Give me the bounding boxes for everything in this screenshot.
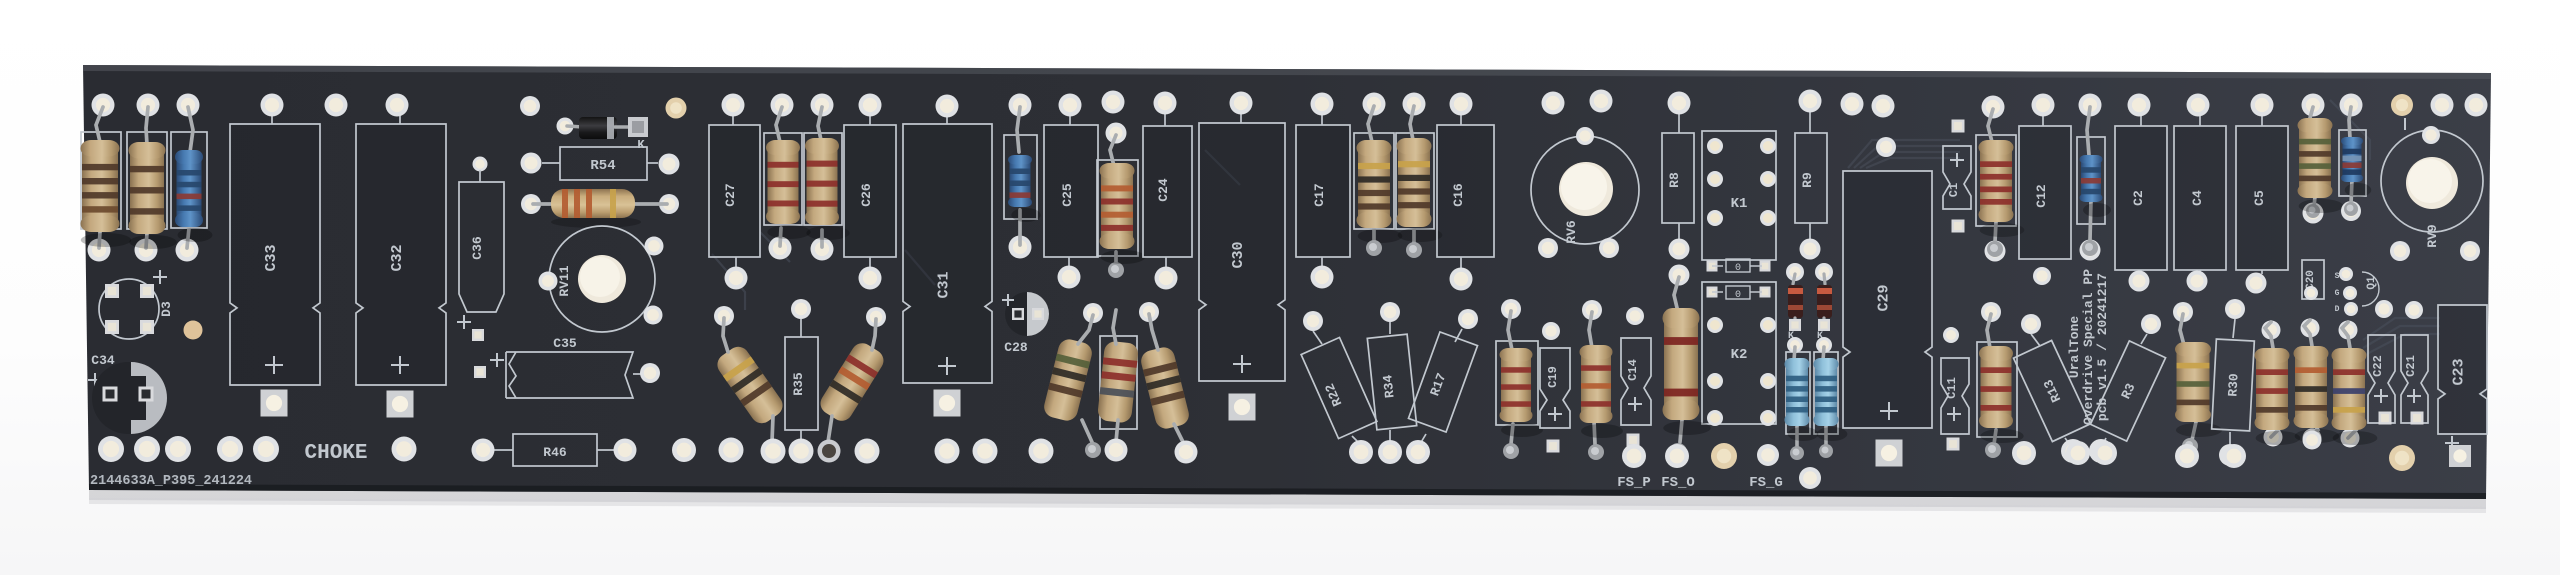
svg-text:C31: C31 bbox=[936, 271, 953, 298]
svg-text:CHOKE: CHOKE bbox=[304, 442, 367, 465]
svg-text:C29: C29 bbox=[1876, 284, 1893, 311]
svg-text:C5: C5 bbox=[2252, 190, 2267, 206]
svg-text:Q1: Q1 bbox=[2366, 276, 2378, 290]
svg-text:C11: C11 bbox=[1945, 377, 1959, 399]
svg-text:D3: D3 bbox=[159, 301, 174, 317]
svg-text:C4: C4 bbox=[2190, 190, 2205, 206]
svg-text:K: K bbox=[637, 138, 645, 152]
svg-text:C32: C32 bbox=[389, 244, 406, 271]
svg-text:S: S bbox=[2335, 272, 2340, 281]
svg-text:Overdrive Special PP: Overdrive Special PP bbox=[2081, 269, 2096, 425]
svg-text:K1: K1 bbox=[1731, 196, 1748, 212]
svg-text:K2: K2 bbox=[1731, 347, 1748, 363]
svg-text:C21: C21 bbox=[2404, 355, 2418, 377]
svg-text:R54: R54 bbox=[590, 158, 615, 174]
svg-text:C28: C28 bbox=[1004, 340, 1028, 355]
svg-text:R9: R9 bbox=[1800, 172, 1815, 188]
svg-text:RV11: RV11 bbox=[557, 265, 572, 296]
svg-text:FS_P: FS_P bbox=[1617, 475, 1651, 491]
svg-text:C30: C30 bbox=[1230, 241, 1247, 268]
svg-text:FS_O: FS_O bbox=[1661, 475, 1695, 491]
svg-text:D: D bbox=[2335, 305, 2340, 314]
svg-text:R35: R35 bbox=[791, 372, 806, 396]
svg-text:2144633A_P395_241224: 2144633A_P395_241224 bbox=[90, 474, 252, 489]
svg-text:C16: C16 bbox=[1451, 183, 1466, 207]
svg-text:C17: C17 bbox=[1312, 183, 1327, 206]
svg-text:0: 0 bbox=[1735, 263, 1741, 274]
svg-text:C25: C25 bbox=[1060, 183, 1075, 207]
svg-text:R30: R30 bbox=[2225, 373, 2241, 397]
svg-text:RV6: RV6 bbox=[1564, 220, 1579, 244]
svg-text:C36: C36 bbox=[470, 236, 485, 260]
svg-text:C27: C27 bbox=[723, 183, 738, 206]
svg-text:C34: C34 bbox=[91, 353, 115, 368]
svg-text:R34: R34 bbox=[1380, 374, 1397, 399]
svg-text:UralTone: UralTone bbox=[2067, 316, 2082, 379]
svg-text:C35: C35 bbox=[553, 336, 577, 351]
svg-text:C33: C33 bbox=[263, 244, 280, 271]
svg-text:R8: R8 bbox=[1667, 172, 1682, 188]
svg-text:C14: C14 bbox=[1626, 359, 1640, 381]
svg-text:R46: R46 bbox=[543, 445, 567, 460]
svg-text:C23: C23 bbox=[2451, 358, 2468, 385]
svg-text:C19: C19 bbox=[1546, 366, 1560, 388]
svg-text:0: 0 bbox=[1735, 290, 1741, 301]
svg-text:FS_G: FS_G bbox=[1749, 475, 1783, 491]
svg-text:RV9: RV9 bbox=[2425, 224, 2440, 248]
svg-text:C12: C12 bbox=[2034, 184, 2049, 208]
svg-text:C2: C2 bbox=[2131, 190, 2146, 206]
svg-text:pcb v1.5 / 20241217: pcb v1.5 / 20241217 bbox=[2095, 273, 2110, 421]
svg-text:C22: C22 bbox=[2371, 355, 2385, 377]
svg-text:C24: C24 bbox=[1156, 178, 1171, 202]
svg-text:C1: C1 bbox=[1947, 183, 1961, 197]
svg-text:G: G bbox=[2335, 289, 2340, 298]
svg-text:C26: C26 bbox=[859, 183, 874, 207]
